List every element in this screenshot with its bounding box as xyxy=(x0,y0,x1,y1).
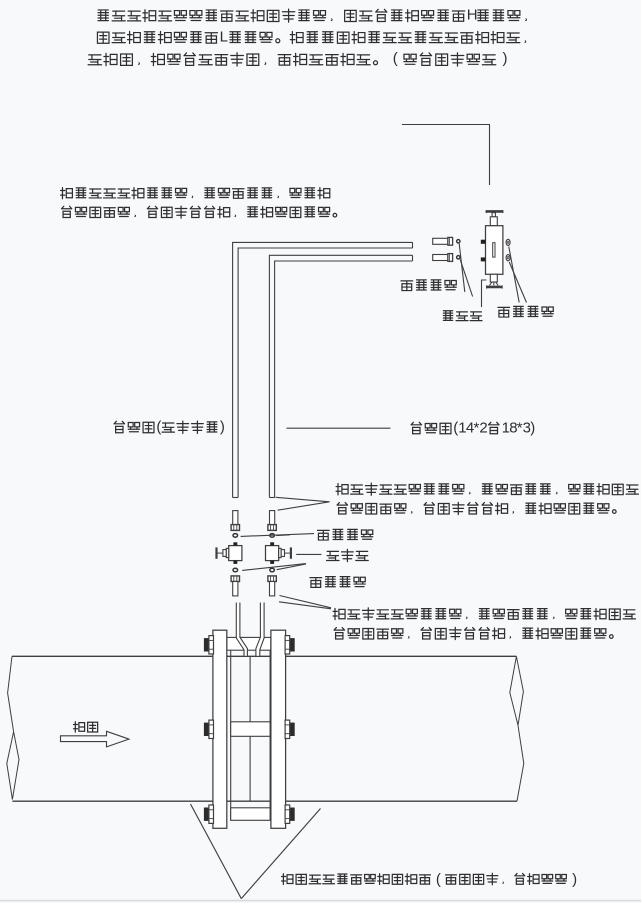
svg-text:(: ( xyxy=(156,419,161,436)
svg-text:2: 2 xyxy=(479,420,487,437)
svg-text:): ) xyxy=(220,419,225,436)
svg-text:): ) xyxy=(503,50,508,67)
svg-text:): ) xyxy=(572,871,577,888)
svg-text:H: H xyxy=(467,7,478,24)
svg-text:(: ( xyxy=(436,871,441,888)
svg-text:): ) xyxy=(530,420,535,437)
svg-text:L: L xyxy=(220,29,228,46)
svg-text:(: ( xyxy=(393,50,398,67)
